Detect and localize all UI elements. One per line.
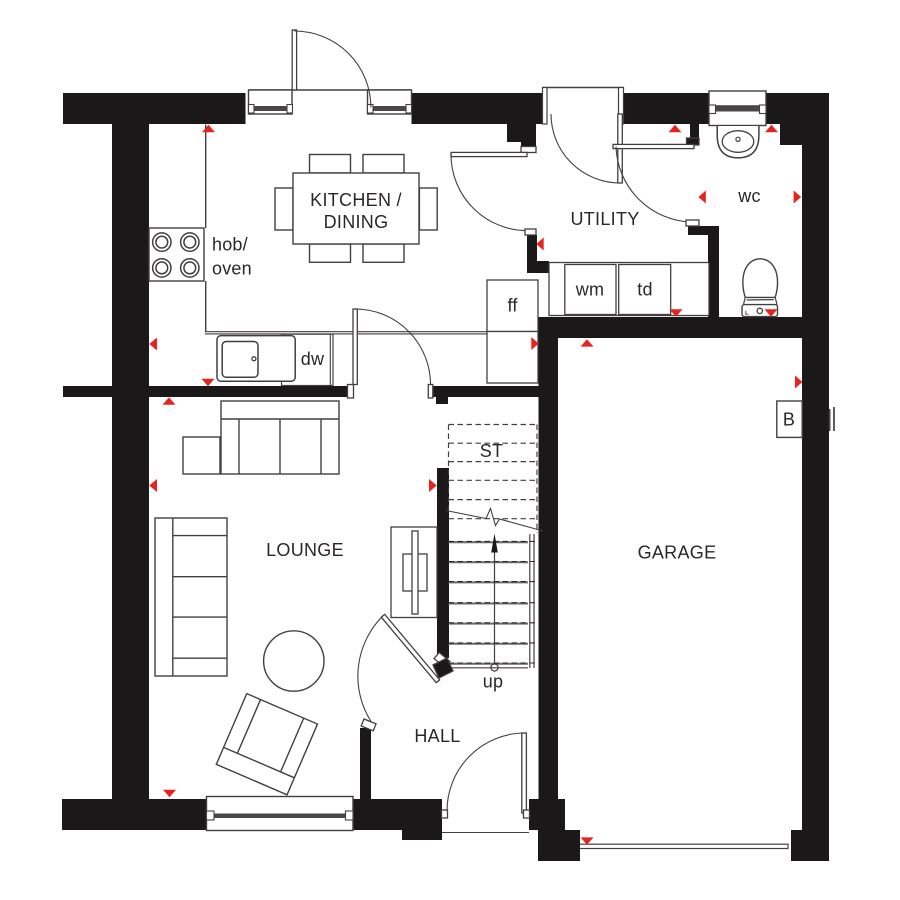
svg-text:LOUNGE: LOUNGE <box>266 540 344 560</box>
svg-text:oven: oven <box>212 259 252 279</box>
svg-text:ST: ST <box>480 441 504 461</box>
svg-text:up: up <box>483 672 503 692</box>
svg-text:wm: wm <box>575 280 604 300</box>
svg-text:GARAGE: GARAGE <box>638 543 717 563</box>
svg-text:hob/: hob/ <box>212 235 248 255</box>
svg-text:DINING: DINING <box>324 212 389 232</box>
svg-text:KITCHEN /: KITCHEN / <box>310 190 402 210</box>
svg-text:dw: dw <box>301 349 325 369</box>
svg-text:B: B <box>783 410 795 430</box>
svg-text:HALL: HALL <box>414 726 460 746</box>
svg-text:ff: ff <box>507 296 518 316</box>
svg-text:wc: wc <box>737 186 760 206</box>
svg-text:td: td <box>637 280 652 300</box>
svg-text:UTILITY: UTILITY <box>570 209 639 229</box>
